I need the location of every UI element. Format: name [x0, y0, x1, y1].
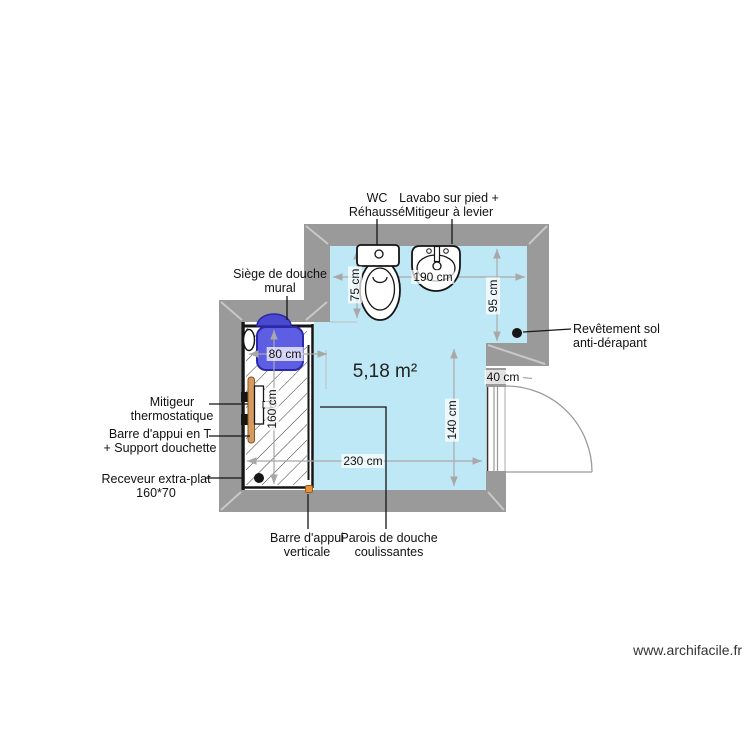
- dim-160cm: 160 cm: [265, 387, 279, 430]
- label-lavabo: Lavabo sur pied + Mitigeur à levier: [399, 191, 499, 219]
- wall-left: [219, 300, 241, 490]
- sink-lavabo: [412, 246, 460, 291]
- door-swing-arc: [506, 386, 592, 472]
- label-wc: WC Réhaussé: [349, 191, 405, 219]
- dim-190cm: 190 cm: [411, 270, 454, 284]
- grab-bar-t: [248, 377, 255, 443]
- dim-40cm: 40 cm: [485, 370, 522, 384]
- label-barre-appui-t: Barre d'appui en T + Support douchette: [104, 427, 217, 455]
- bar-bracket-top: [241, 392, 248, 402]
- douchette-support: [255, 386, 264, 424]
- vertical-grab-bar-marker: [306, 486, 313, 493]
- label-mitigeur: Mitigeur thermostatique: [131, 395, 214, 423]
- label-parois: Parois de douche coulissantes: [340, 531, 437, 559]
- label-revetement: Revêtement sol anti-dérapant: [573, 322, 660, 350]
- watermark: www.archifacile.fr: [633, 642, 742, 658]
- dim-230cm: 230 cm: [341, 454, 384, 468]
- wall-right-upper: [527, 246, 549, 343]
- wall-top: [304, 224, 549, 246]
- wall-bottom: [219, 490, 506, 512]
- entrance-door: [486, 386, 592, 472]
- dim-75cm: 75 cm: [348, 267, 362, 304]
- faucet-knob-left: [427, 249, 432, 254]
- faucet-spout: [435, 247, 440, 262]
- wall-door-pier-bottom: [486, 472, 506, 490]
- flush-button: [375, 250, 383, 258]
- label-siege-douche: Siège de douche mural: [233, 267, 327, 295]
- label-receveur: Receveur extra-plat 160*70: [101, 472, 210, 500]
- dim-80cm: 80 cm: [267, 347, 304, 361]
- floor-covering-marker: [512, 328, 522, 338]
- area-label: 5,18 m²: [353, 361, 417, 383]
- shower-head-holder: [244, 330, 255, 351]
- dim-140cm: 140 cm: [445, 398, 459, 441]
- wc-toilet: [357, 245, 400, 320]
- dim-95cm: 95 cm: [486, 278, 500, 315]
- shower-drain: [254, 473, 264, 483]
- faucet-knob-right: [444, 249, 449, 254]
- sink-drain: [433, 262, 441, 270]
- bar-bracket-bottom: [241, 414, 248, 425]
- floor-plan-canvas: WC Réhaussé Lavabo sur pied + Mitigeur à…: [0, 0, 750, 750]
- label-barre-verticale: Barre d'appui verticale: [270, 531, 344, 559]
